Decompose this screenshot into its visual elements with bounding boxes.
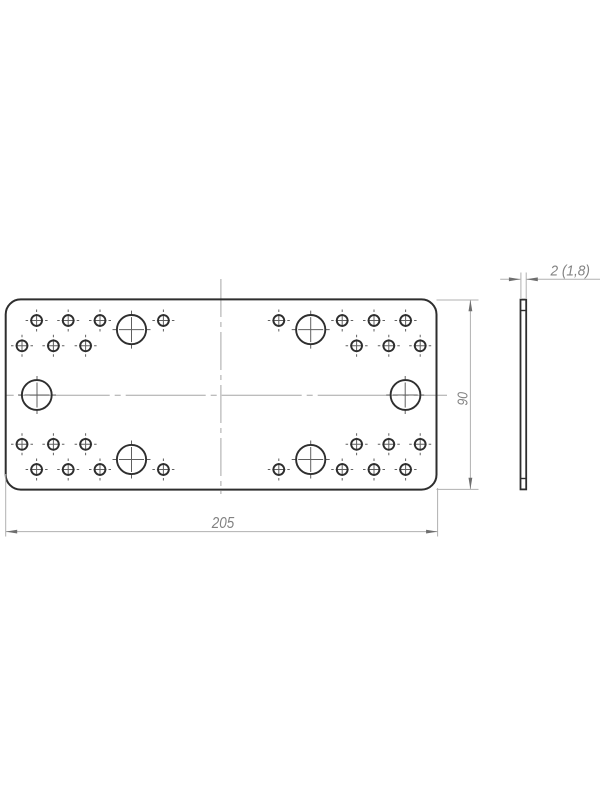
svg-text:90: 90 [455,392,471,406]
svg-text:205: 205 [211,515,235,532]
svg-text:2 (1,8): 2 (1,8) [549,263,589,279]
